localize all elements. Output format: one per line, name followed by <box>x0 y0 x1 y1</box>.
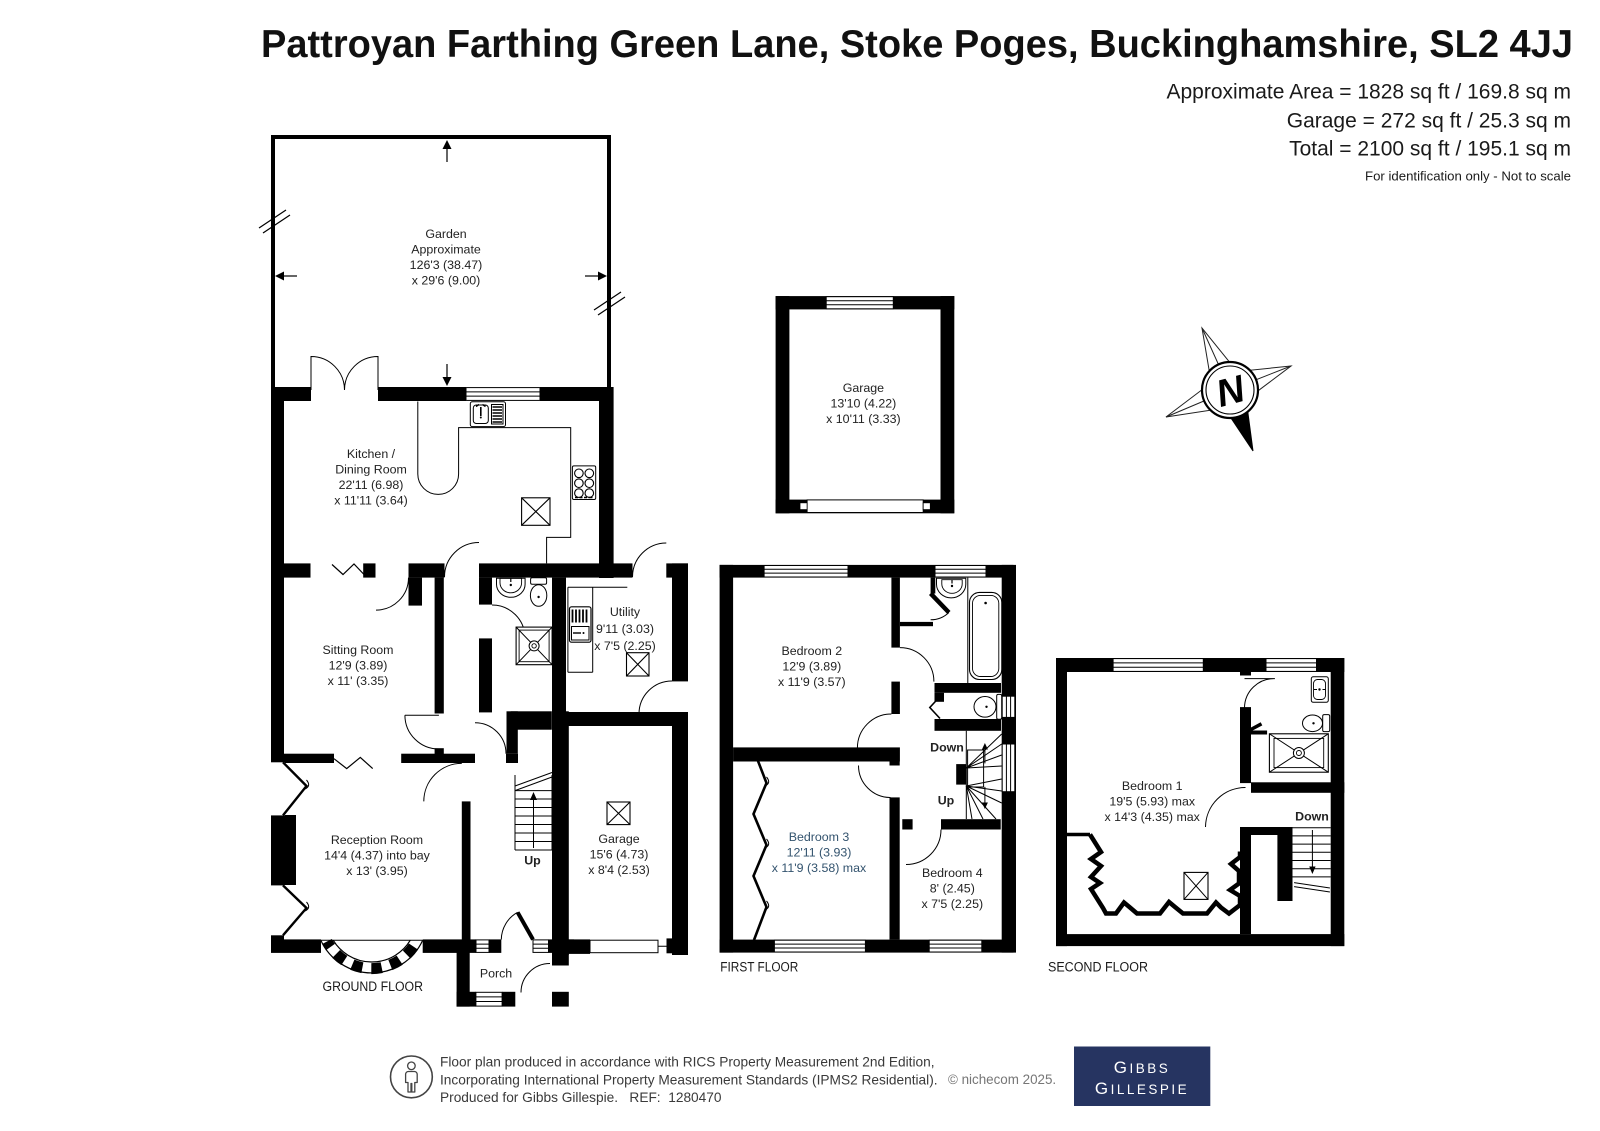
svg-text:Bedroom 2: Bedroom 2 <box>781 644 842 658</box>
svg-text:Garden: Garden <box>425 227 466 241</box>
svg-text:x 8'4 (2.53): x 8'4 (2.53) <box>588 863 650 877</box>
svg-text:12'9 (3.89): 12'9 (3.89) <box>782 660 841 674</box>
svg-text:© nichecom 2025.: © nichecom 2025. <box>948 1072 1056 1087</box>
svg-text:Up: Up <box>938 794 955 808</box>
svg-text:Bedroom 4: Bedroom 4 <box>922 866 983 880</box>
svg-text:x 10'11 (3.33): x 10'11 (3.33) <box>826 412 900 426</box>
svg-text:Floor plan produced in accorda: Floor plan produced in accordance with R… <box>440 1055 935 1070</box>
svg-text:Dining Room: Dining Room <box>335 463 407 477</box>
svg-text:x 11' (3.35): x 11' (3.35) <box>328 674 389 688</box>
svg-text:13'10 (4.22): 13'10 (4.22) <box>831 397 897 411</box>
svg-text:Garage = 272 sq ft / 25.3 sq m: Garage = 272 sq ft / 25.3 sq m <box>1287 110 1571 133</box>
svg-text:x 13' (3.95): x 13' (3.95) <box>346 864 408 878</box>
svg-text:Porch: Porch <box>480 967 512 981</box>
svg-text:12'11 (3.93): 12'11 (3.93) <box>787 846 852 860</box>
svg-text:Reception Room: Reception Room <box>331 833 423 847</box>
svg-text:Approximate Area = 1828 sq ft: Approximate Area = 1828 sq ft / 169.8 sq… <box>1167 81 1572 104</box>
svg-text:14'4 (4.37) into bay: 14'4 (4.37) into bay <box>324 849 430 863</box>
svg-text:SECOND FLOOR: SECOND FLOOR <box>1048 960 1148 975</box>
svg-text:x 7'5 (2.25): x 7'5 (2.25) <box>921 897 983 911</box>
svg-text:Garage: Garage <box>598 832 639 846</box>
svg-text:Approximate: Approximate <box>411 243 481 257</box>
svg-text:Sitting Room: Sitting Room <box>323 643 394 657</box>
svg-text:x 14'3 (4.35) max: x 14'3 (4.35) max <box>1105 810 1201 824</box>
svg-text:Bedroom 3: Bedroom 3 <box>789 830 850 844</box>
svg-text:x 11'9 (3.58) max: x 11'9 (3.58) max <box>772 861 867 875</box>
svg-text:For identification only - Not: For identification only - Not to scale <box>1365 169 1571 184</box>
svg-text:x 29'6 (9.00): x 29'6 (9.00) <box>412 274 481 288</box>
svg-text:126'3 (38.47): 126'3 (38.47) <box>410 258 483 272</box>
svg-text:Garage: Garage <box>843 381 884 395</box>
svg-text:x 11'9 (3.57): x 11'9 (3.57) <box>778 675 846 689</box>
svg-text:FIRST FLOOR: FIRST FLOOR <box>720 960 798 975</box>
svg-text:Down: Down <box>1295 810 1329 824</box>
svg-text:Pattroyan Farthing Green Lane,: Pattroyan Farthing Green Lane, Stoke Pog… <box>261 23 1573 66</box>
svg-text:Down: Down <box>930 741 964 755</box>
svg-text:Kitchen /: Kitchen / <box>347 447 396 461</box>
svg-text:22'11 (6.98): 22'11 (6.98) <box>339 478 404 492</box>
svg-text:GIBBS: GIBBS <box>1114 1058 1171 1077</box>
svg-text:Total = 2100 sq ft / 195.1 sq: Total = 2100 sq ft / 195.1 sq m <box>1289 138 1571 161</box>
svg-text:Utility: Utility <box>610 605 641 619</box>
svg-text:Produced for Gibbs Gillespie.: Produced for Gibbs Gillespie. REF: 12804… <box>440 1090 722 1105</box>
svg-text:8' (2.45): 8' (2.45) <box>930 882 975 896</box>
svg-text:12'9 (3.89): 12'9 (3.89) <box>329 659 388 673</box>
svg-text:GILLESPIE: GILLESPIE <box>1095 1079 1189 1098</box>
svg-text:x 11'11 (3.64): x 11'11 (3.64) <box>334 494 408 508</box>
svg-text:19'5 (5.93) max: 19'5 (5.93) max <box>1109 794 1196 808</box>
svg-text:Bedroom 1: Bedroom 1 <box>1122 779 1183 793</box>
svg-text:9'11 (3.03): 9'11 (3.03) <box>596 622 654 636</box>
svg-text:x 7'5 (2.25): x 7'5 (2.25) <box>594 639 656 653</box>
svg-text:15'6 (4.73): 15'6 (4.73) <box>590 848 649 862</box>
svg-text:GROUND FLOOR: GROUND FLOOR <box>323 979 424 994</box>
svg-text:Incorporating International Pr: Incorporating International Property Mea… <box>440 1072 938 1087</box>
svg-text:Up: Up <box>524 854 541 868</box>
